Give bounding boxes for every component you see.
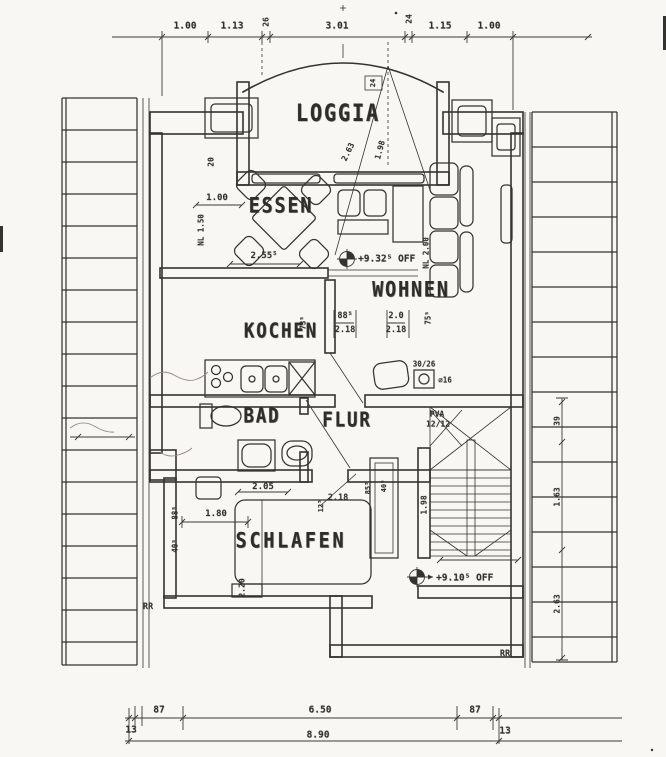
dim-bottom-left87: 87 — [153, 705, 164, 716]
staircase — [430, 407, 511, 556]
elevation-label-living: +9.32⁵ OFF — [358, 254, 415, 265]
dim-annotation: NL 2.00 — [422, 237, 431, 269]
dim-annotation: 40⁵ — [171, 539, 180, 553]
dim-annotation: 1.80 — [205, 509, 227, 519]
dim-annotation: NL 1.50 — [197, 214, 206, 246]
dim-top-3: 3.01 — [326, 21, 349, 32]
dim-annotation: 75⁵ — [424, 311, 433, 325]
benchmark-living — [337, 249, 357, 269]
dim-top-5: 1.00 — [478, 21, 501, 32]
dim-annotation: 73⁵ — [299, 316, 308, 330]
dim-annotation: RR — [143, 602, 153, 612]
room-label-loggia: LOGGIA — [296, 101, 380, 128]
room-label-flur: FLUR — [322, 408, 371, 432]
dim-bottom-total: 8.90 — [307, 730, 330, 741]
dim-top-4: 1.15 — [429, 21, 452, 32]
room-label-schlafen: SCHLAFEN — [236, 527, 347, 553]
dim-annotation: 12⁵ — [317, 500, 325, 513]
dim-annotation: ∅16 — [438, 376, 452, 385]
dim-bottom-left13: 13 — [125, 725, 136, 736]
dim-annotation: PVA — [430, 410, 444, 419]
roof-hatch-right — [532, 112, 617, 662]
dim-annotation: 1.00 — [206, 193, 228, 203]
dim-annotation: 40⁵ — [380, 480, 388, 493]
roof-hatch-left — [62, 98, 137, 665]
dim-annotation: 85⁵ — [364, 482, 372, 495]
dim-annotation: 24 — [405, 14, 414, 24]
dim-annotation: 26 — [262, 17, 271, 27]
dim-annotation: 30/26 — [413, 360, 436, 369]
dim-annotation: 2.05 — [252, 482, 274, 492]
dim-annotation: 2.18 — [386, 325, 406, 335]
room-label-bad: BAD — [243, 404, 280, 428]
room-label-essen: ESSEN — [249, 192, 314, 218]
dim-annotation: 88⁵ — [337, 311, 352, 321]
dim-annotation: RR — [500, 649, 510, 659]
dim-annotation: 24 — [369, 79, 377, 87]
dim-top-1: 1.00 — [174, 21, 197, 32]
chimney — [414, 370, 434, 388]
floorplan-scan: LOGGIA ESSEN WOHNEN KOCHEN BAD FLUR SCHL… — [0, 0, 666, 757]
entry-door — [370, 458, 398, 558]
dim-annotation: 2.0 — [388, 311, 403, 321]
dim-annotation: 12/12 — [426, 420, 450, 429]
dim-bottom-right87: 87 — [469, 705, 480, 716]
dim-annotation: 2.55⁵ — [250, 251, 277, 261]
dim-top-2: 1.13 — [221, 21, 244, 32]
dim-annotation: 2.20 — [238, 578, 247, 597]
dim-bottom-mid: 6.50 — [309, 705, 332, 716]
dim-annotation: 2.18 — [328, 493, 348, 503]
dim-bottom-right13: 13 — [499, 726, 510, 737]
dim-annotation: 1.98 — [420, 495, 429, 514]
dim-annotation: 20 — [207, 157, 216, 167]
dim-annotation: 39 — [553, 416, 562, 426]
hall-wardrobe — [372, 360, 409, 390]
dim-annotation: 2.63 — [553, 594, 562, 613]
elevation-label-stair: +9.10⁵ OFF — [436, 573, 493, 584]
loggia-arc — [243, 44, 443, 92]
kitchen-counter — [205, 360, 315, 397]
dim-annotation: 88⁵ — [171, 506, 180, 520]
dim-annotation: 1.63 — [553, 487, 562, 506]
walls — [150, 82, 523, 657]
dim-annotation: 2.18 — [335, 325, 355, 335]
scan-scribbles — [70, 372, 208, 456]
room-label-wohnen: WOHNEN — [372, 276, 450, 302]
benchmark-stair — [407, 567, 433, 587]
